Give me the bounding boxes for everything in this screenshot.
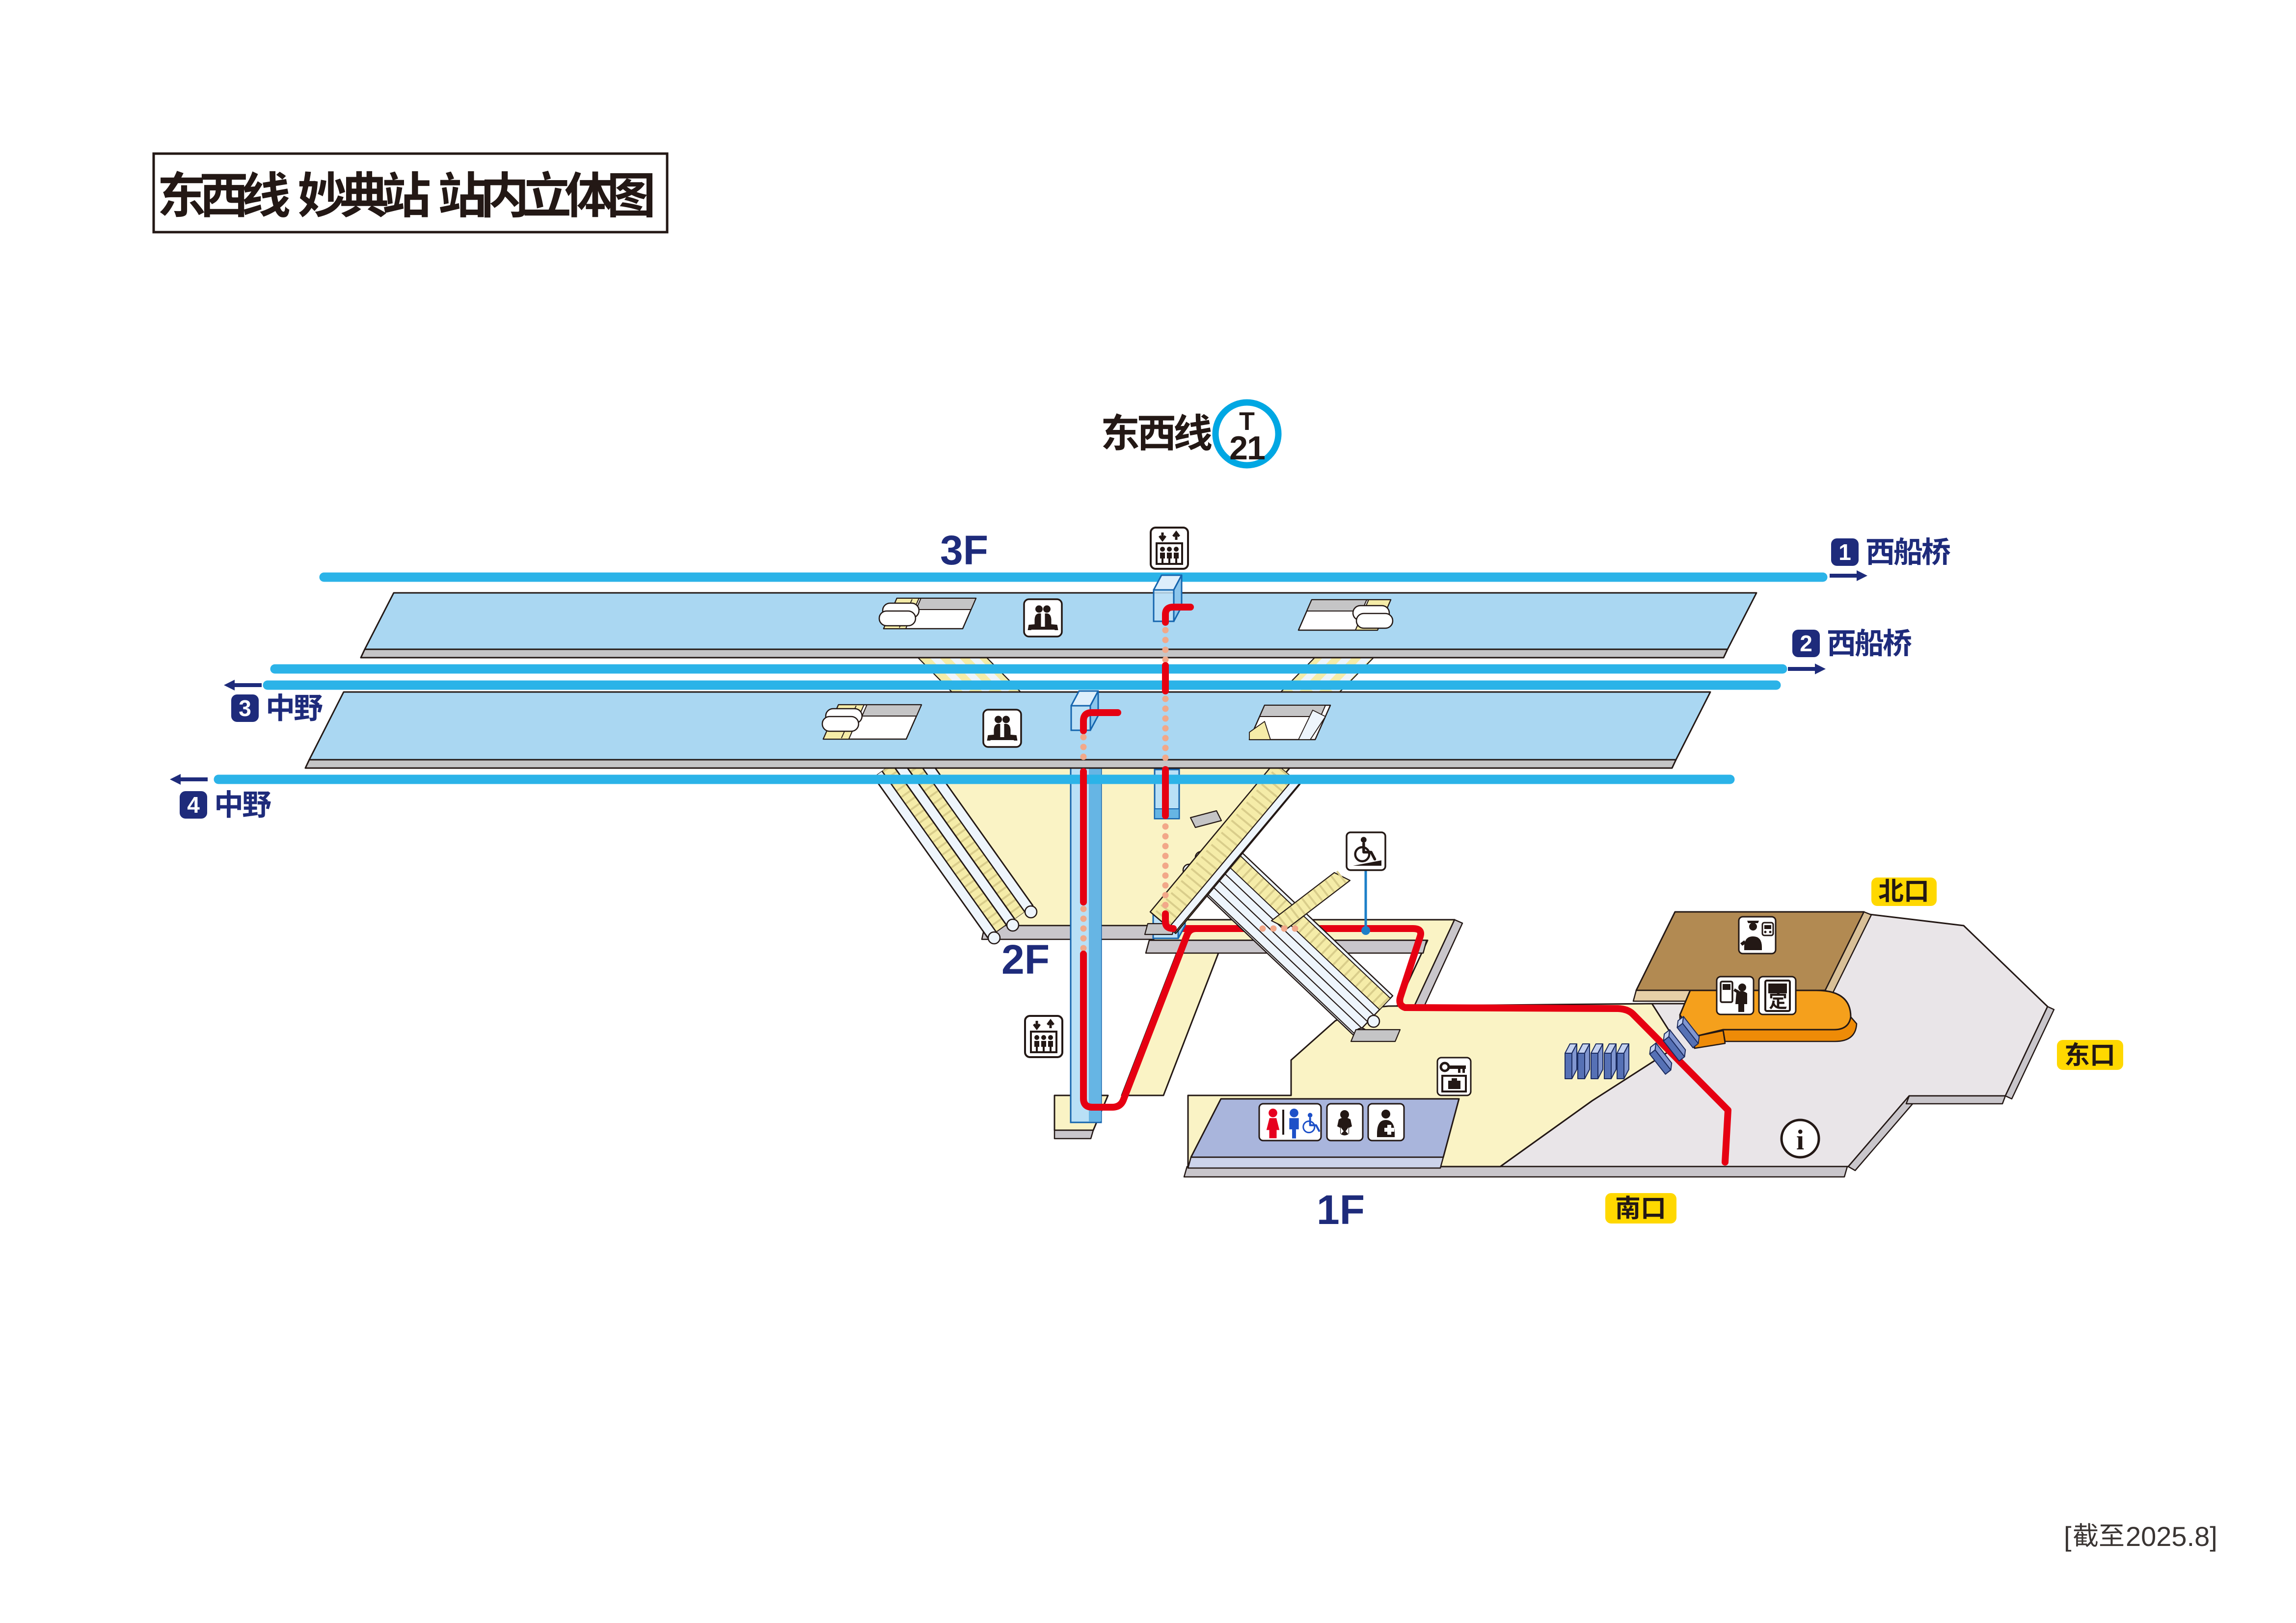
svg-text:2025.8]: 2025.8] — [2126, 1521, 2217, 1552]
svg-text:3: 3 — [239, 695, 251, 721]
svg-text:3F: 3F — [940, 527, 988, 573]
svg-text:4: 4 — [187, 792, 200, 818]
svg-text:[: [ — [2064, 1521, 2072, 1552]
svg-text:21: 21 — [1229, 429, 1265, 467]
svg-text:i: i — [1796, 1124, 1804, 1156]
svg-text:1F: 1F — [1317, 1187, 1365, 1233]
svg-text:2: 2 — [1800, 631, 1812, 656]
svg-text:2F: 2F — [1001, 936, 1050, 983]
svg-text:1: 1 — [1838, 539, 1851, 565]
